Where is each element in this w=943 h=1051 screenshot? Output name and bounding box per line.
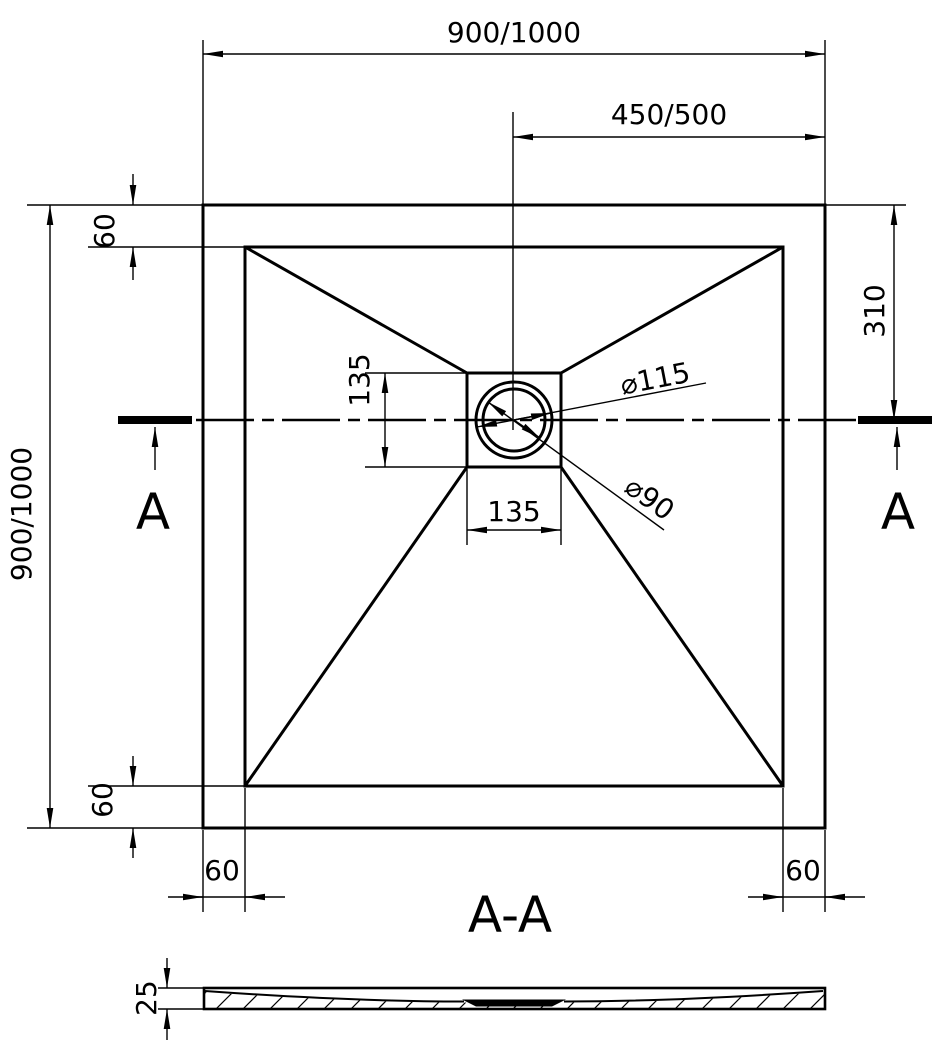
dim-drain-offset-text: 310 <box>858 284 891 337</box>
dim-rim-left-text: 60 <box>204 854 240 887</box>
shower-tray-technical-drawing: A A 900/1000 450/500 <box>0 0 943 1051</box>
dim-rim-top-text: 60 <box>88 213 121 249</box>
dim-rim-right-text: 60 <box>785 854 821 887</box>
section-label-left: A <box>136 483 170 541</box>
dim-drain-square-width-text: 135 <box>487 495 540 528</box>
dim-rim-bottom-text: 60 <box>86 782 119 818</box>
dim-overall-height-text: 900/1000 <box>5 447 38 581</box>
dim-drain-square-height-text: 135 <box>343 353 376 406</box>
dim-center-to-right-edge-text: 450/500 <box>611 98 727 131</box>
section-label-right: A <box>881 483 915 541</box>
drain-section-mark <box>462 1000 566 1007</box>
section-title: A-A <box>468 886 552 944</box>
drawing-svg: A A 900/1000 450/500 <box>0 0 943 1051</box>
dim-thickness-text: 25 <box>130 980 163 1016</box>
dim-overall-width-text: 900/1000 <box>447 16 581 49</box>
